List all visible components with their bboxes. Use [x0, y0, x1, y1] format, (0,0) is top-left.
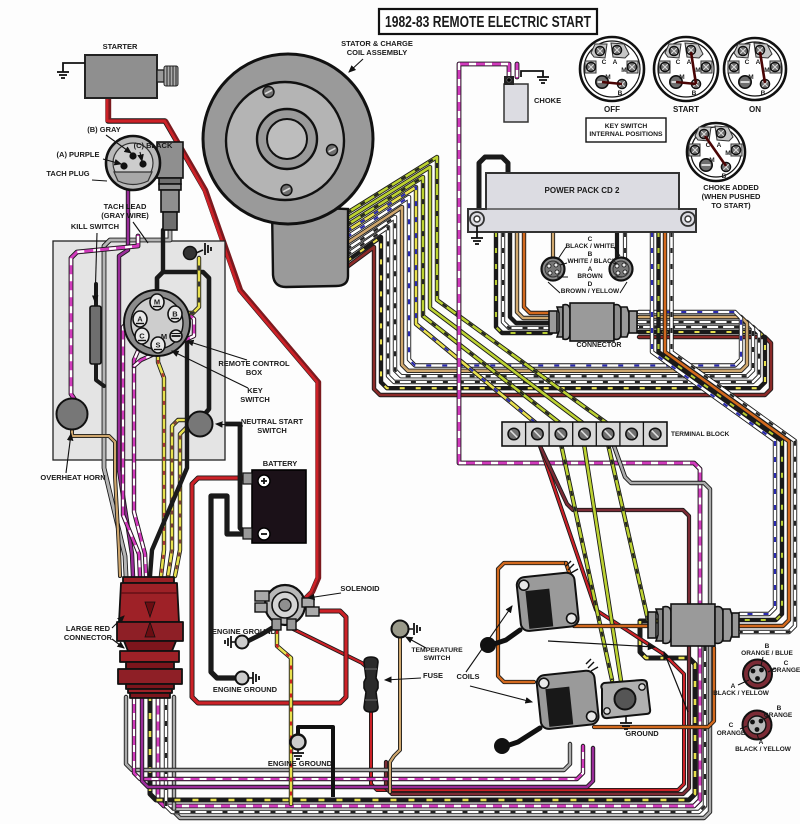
svg-text:SWITCH: SWITCH [240, 395, 270, 404]
svg-text:BOX: BOX [246, 368, 262, 377]
svg-text:M: M [621, 67, 626, 74]
svg-text:C: C [729, 722, 734, 729]
svg-text:TERMINAL BLOCK: TERMINAL BLOCK [671, 431, 730, 438]
svg-text:(WHEN PUSHED: (WHEN PUSHED [702, 192, 761, 201]
svg-text:BATTERY: BATTERY [263, 459, 298, 468]
svg-text:SWITCH: SWITCH [424, 655, 451, 662]
svg-text:B: B [588, 251, 593, 258]
svg-text:A: A [687, 59, 692, 66]
svg-text:COILS: COILS [457, 672, 480, 681]
svg-text:C: C [602, 59, 607, 66]
svg-text:(GRAY WIRE): (GRAY WIRE) [101, 211, 149, 220]
svg-text:TEMPERATURE: TEMPERATURE [411, 647, 463, 654]
svg-text:KEY: KEY [247, 386, 262, 395]
svg-text:M: M [605, 74, 610, 81]
svg-text:M: M [679, 74, 684, 81]
svg-text:OVERHEAT HORN: OVERHEAT HORN [40, 473, 105, 482]
svg-text:ORANGE / BLUE: ORANGE / BLUE [741, 650, 793, 657]
svg-text:1982-83 REMOTE ELECTRIC START: 1982-83 REMOTE ELECTRIC START [385, 14, 591, 31]
svg-text:(B) GRAY: (B) GRAY [87, 125, 120, 134]
svg-text:M: M [709, 157, 714, 164]
svg-text:M: M [764, 67, 769, 74]
svg-text:ORANGE: ORANGE [717, 730, 746, 737]
svg-text:B: B [722, 173, 727, 180]
svg-text:A: A [731, 683, 736, 690]
svg-text:B: B [765, 643, 770, 650]
svg-text:NEUTRAL START: NEUTRAL START [241, 417, 304, 426]
svg-text:ENGINE GROUND: ENGINE GROUND [212, 627, 277, 636]
svg-text:TACH PLUG: TACH PLUG [46, 169, 89, 178]
svg-text:ON: ON [749, 105, 761, 114]
svg-text:CONNECTOR: CONNECTOR [577, 342, 622, 349]
svg-text:M: M [748, 74, 753, 81]
svg-text:GROUND: GROUND [625, 729, 659, 738]
svg-text:B: B [761, 90, 766, 97]
svg-text:M: M [154, 298, 160, 307]
svg-text:OFF: OFF [604, 105, 620, 114]
svg-text:COIL ASSEMBLY: COIL ASSEMBLY [347, 48, 408, 57]
svg-text:A: A [756, 59, 761, 66]
svg-text:A: A [613, 59, 618, 66]
svg-text:FUSE: FUSE [423, 671, 443, 680]
svg-text:ENGINE GROUND: ENGINE GROUND [213, 685, 278, 694]
svg-text:BROWN: BROWN [577, 273, 603, 280]
svg-text:A: A [588, 266, 593, 273]
svg-text:(C) BLACK: (C) BLACK [134, 141, 173, 150]
svg-text:M: M [161, 332, 167, 341]
svg-text:A: A [759, 739, 764, 746]
svg-text:B: B [777, 705, 782, 712]
svg-text:B: B [618, 90, 623, 97]
svg-text:WHITE / BLACK: WHITE / BLACK [567, 258, 616, 265]
svg-text:STARTER: STARTER [103, 42, 138, 51]
svg-text:C: C [588, 236, 593, 243]
svg-text:BLACK / YELLOW: BLACK / YELLOW [735, 746, 792, 753]
svg-text:TO START): TO START) [711, 201, 751, 210]
svg-text:KEY SWITCH: KEY SWITCH [605, 123, 648, 130]
svg-text:BROWN / YELLOW: BROWN / YELLOW [561, 288, 620, 295]
svg-text:M: M [695, 67, 700, 74]
svg-text:ORANGE: ORANGE [764, 712, 793, 719]
svg-text:REMOTE CONTROL: REMOTE CONTROL [218, 359, 290, 368]
svg-text:D: D [588, 281, 593, 288]
svg-text:CONNECTOR: CONNECTOR [64, 633, 113, 642]
svg-text:C: C [745, 59, 750, 66]
svg-text:M: M [725, 150, 730, 157]
svg-text:START: START [673, 105, 699, 114]
svg-text:BLACK / WHITE: BLACK / WHITE [565, 243, 615, 250]
svg-text:C: C [784, 660, 789, 667]
svg-text:A: A [137, 315, 143, 324]
svg-text:CHOKE: CHOKE [534, 96, 561, 105]
svg-text:(A) PURPLE: (A) PURPLE [57, 150, 100, 159]
svg-text:LARGE RED: LARGE RED [66, 624, 111, 633]
svg-text:A: A [717, 142, 722, 149]
svg-text:CHOKE ADDED: CHOKE ADDED [703, 183, 759, 192]
svg-text:ENGINE GROUND: ENGINE GROUND [268, 759, 333, 768]
svg-text:TACH LEAD: TACH LEAD [104, 202, 147, 211]
svg-text:INTERNAL POSITIONS: INTERNAL POSITIONS [589, 131, 663, 138]
svg-text:C: C [139, 332, 145, 341]
svg-text:S: S [155, 341, 160, 350]
svg-text:SOLENOID: SOLENOID [340, 584, 380, 593]
svg-text:STATOR & CHARGE: STATOR & CHARGE [341, 39, 413, 48]
svg-text:B: B [172, 310, 178, 319]
svg-text:KILL SWITCH: KILL SWITCH [71, 222, 119, 231]
svg-text:BLACK / YELLOW: BLACK / YELLOW [713, 690, 770, 697]
svg-text:B: B [692, 90, 697, 97]
svg-text:C: C [676, 59, 681, 66]
svg-text:POWER PACK CD 2: POWER PACK CD 2 [545, 186, 621, 195]
svg-text:SWITCH: SWITCH [257, 426, 287, 435]
